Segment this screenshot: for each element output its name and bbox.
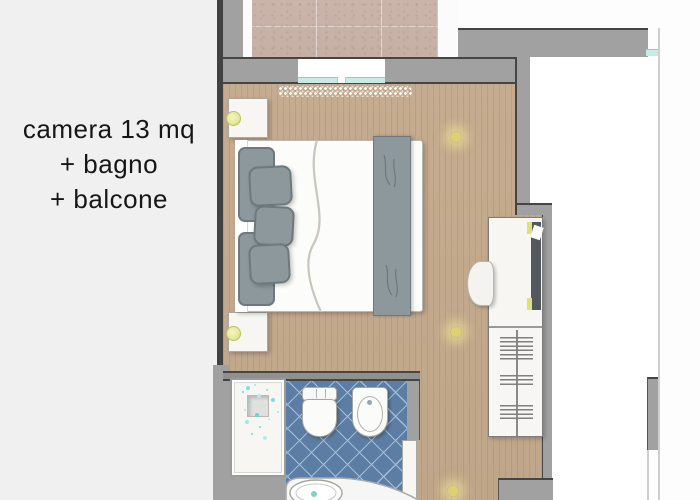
adjacent-space-lower — [552, 210, 658, 500]
far-right-wall-segment — [647, 377, 658, 450]
runner-creases — [374, 137, 410, 315]
caption-line-balcone: + balcone — [0, 182, 218, 217]
toilet-flush-buttons — [316, 389, 326, 398]
bathroom-right-wall — [407, 381, 420, 440]
caption-line-camera: camera 13 mq — [0, 112, 218, 147]
ceiling-light-corridor — [447, 485, 459, 497]
hanging-clothes-group-1 — [500, 337, 533, 360]
right-wall-lower — [542, 215, 552, 478]
floor-plan-page: camera 13 mq + bagno + balcone — [0, 0, 700, 500]
bidet — [352, 387, 388, 437]
right-wall-jog — [515, 203, 552, 215]
caption-panel: camera 13 mq + bagno + balcone — [0, 0, 218, 500]
top-right-wall — [458, 28, 648, 57]
bottom-right-wall-block — [498, 478, 553, 500]
hanging-clothes-group-3 — [500, 405, 533, 420]
hanging-clothes-group-2 — [500, 375, 533, 386]
bedside-lamp-bottom — [226, 326, 241, 341]
ceiling-light-middle — [450, 326, 462, 338]
balcony-side-wall — [223, 0, 243, 57]
ceiling-light-top — [450, 131, 462, 143]
duvet-fold — [293, 140, 343, 312]
curtain — [278, 86, 412, 97]
bidet-faucet — [367, 400, 372, 405]
wardrobe-unit — [488, 217, 543, 437]
wardrobe-divider — [489, 326, 542, 328]
mirror-reflection-wedge — [530, 225, 544, 240]
adjacent-space-upper — [530, 57, 658, 210]
bedside-lamp-top — [226, 111, 241, 126]
pillow-2 — [253, 205, 295, 247]
toilet — [302, 387, 337, 437]
sink-counter — [284, 476, 424, 500]
caption-line-bagno: + bagno — [0, 147, 218, 182]
shower-water-splash — [246, 386, 250, 390]
plan-right-edge-line — [658, 28, 660, 500]
bathroom-bottom-left-wall — [213, 477, 286, 500]
shower — [230, 378, 286, 477]
far-right-lower-line — [647, 450, 649, 500]
double-bed — [233, 136, 427, 316]
toilet-bowl — [302, 399, 337, 437]
shower-drain — [247, 395, 269, 417]
balcony-pilaster-right — [437, 0, 459, 57]
mirror-accent-bottom — [527, 298, 532, 310]
balcony-tile-floor — [252, 0, 437, 57]
balcony-door-recess — [298, 59, 385, 78]
right-window — [646, 49, 658, 56]
pillow-3 — [248, 243, 291, 285]
right-wall-upper — [515, 57, 530, 205]
room-caption: camera 13 mq + bagno + balcone — [0, 112, 218, 217]
desk-chair — [467, 261, 494, 306]
bed-runner — [373, 136, 411, 316]
pillow-1 — [248, 165, 293, 207]
balcony-door-divider — [337, 77, 346, 83]
sink-faucet — [311, 491, 317, 497]
